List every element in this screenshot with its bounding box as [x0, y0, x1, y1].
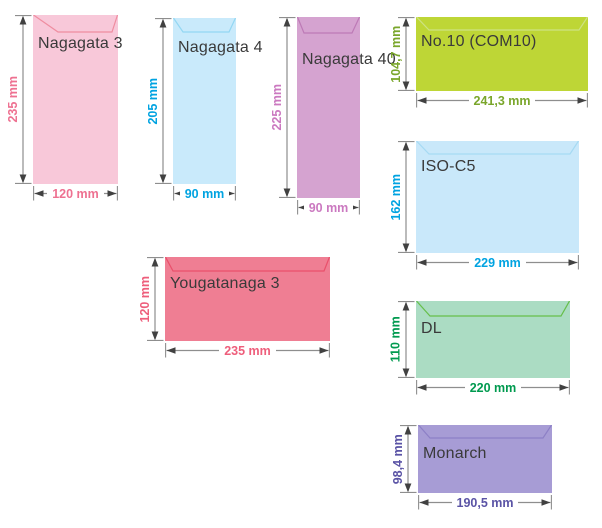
envelope-flap [165, 257, 330, 273]
height-arrow [399, 425, 417, 493]
envelope-flap [418, 425, 552, 440]
envelope-name-label: DL [421, 321, 442, 337]
envelope-body: Nagagata 3 [33, 15, 118, 184]
envelope-yougatanaga-3: Yougatanaga 3 120 mm 235 mm [165, 257, 330, 341]
width-dimension-label: 190,5 mm [452, 497, 519, 510]
envelope-name-label: Nagagata 40 [302, 52, 396, 68]
envelope-body: No.10 (COM10) [416, 17, 588, 91]
height-arrow [14, 15, 32, 184]
width-dimension: 235 mm [165, 343, 330, 359]
envelope-body: ISO-C5 [416, 141, 579, 253]
height-arrow [278, 17, 296, 198]
envelope-size-diagram: Nagagata 3 235 mm 120 mm Nagagata 4 205 … [0, 0, 602, 528]
envelope-body: Yougatanaga 3 [165, 257, 330, 341]
envelope-iso-c5: ISO-C5 162 mm 229 mm [416, 141, 579, 253]
envelope-name-label: Nagagata 3 [38, 36, 123, 52]
envelope-name-label: Monarch [423, 446, 487, 462]
envelope-monarch: Monarch 98,4 mm 190,5 mm [418, 425, 552, 493]
envelope-flap [416, 141, 579, 156]
width-dimension: 190,5 mm [418, 495, 552, 511]
envelope-name-label: No.10 (COM10) [421, 34, 537, 50]
envelope-nagagata-40: Nagagata 40 225 mm 90 mm [297, 17, 360, 198]
width-dimension: 90 mm [297, 200, 360, 216]
width-dimension: 220 mm [416, 380, 570, 396]
width-dimension-label: 90 mm [180, 188, 230, 201]
envelope-body: Monarch [418, 425, 552, 493]
width-dimension-label: 120 mm [47, 188, 104, 201]
height-arrow [397, 17, 415, 91]
width-dimension-label: 241,3 mm [469, 95, 536, 108]
width-dimension: 229 mm [416, 255, 579, 271]
envelope-name-label: Yougatanaga 3 [170, 276, 280, 292]
envelope-name-label: Nagagata 4 [178, 40, 263, 56]
width-dimension-label: 229 mm [469, 257, 526, 270]
height-arrow [397, 301, 415, 378]
width-dimension: 241,3 mm [416, 93, 588, 109]
envelope-flap [416, 17, 588, 32]
width-dimension-label: 220 mm [465, 382, 522, 395]
envelope-flap [416, 301, 570, 318]
width-dimension: 90 mm [173, 186, 236, 202]
envelope-flap [33, 15, 118, 34]
width-dimension-label: 235 mm [219, 345, 276, 358]
envelope-body: Nagagata 4 [173, 18, 236, 184]
envelope-body: DL [416, 301, 570, 378]
envelope-body: Nagagata 40 [297, 17, 360, 198]
envelope-nagagata-4: Nagagata 4 205 mm 90 mm [173, 18, 236, 184]
height-arrow [397, 141, 415, 253]
envelope-flap [173, 18, 236, 34]
width-dimension-label: 90 mm [304, 202, 354, 215]
envelope-no10-com10: No.10 (COM10) 104,7 mm 241,3 mm [416, 17, 588, 91]
height-arrow [146, 257, 164, 341]
width-dimension: 120 mm [33, 186, 118, 202]
height-arrow [154, 18, 172, 184]
envelope-flap [297, 17, 360, 35]
envelope-dl: DL 110 mm 220 mm [416, 301, 570, 378]
envelope-nagagata-3: Nagagata 3 235 mm 120 mm [33, 15, 118, 184]
envelope-name-label: ISO-C5 [421, 159, 476, 175]
